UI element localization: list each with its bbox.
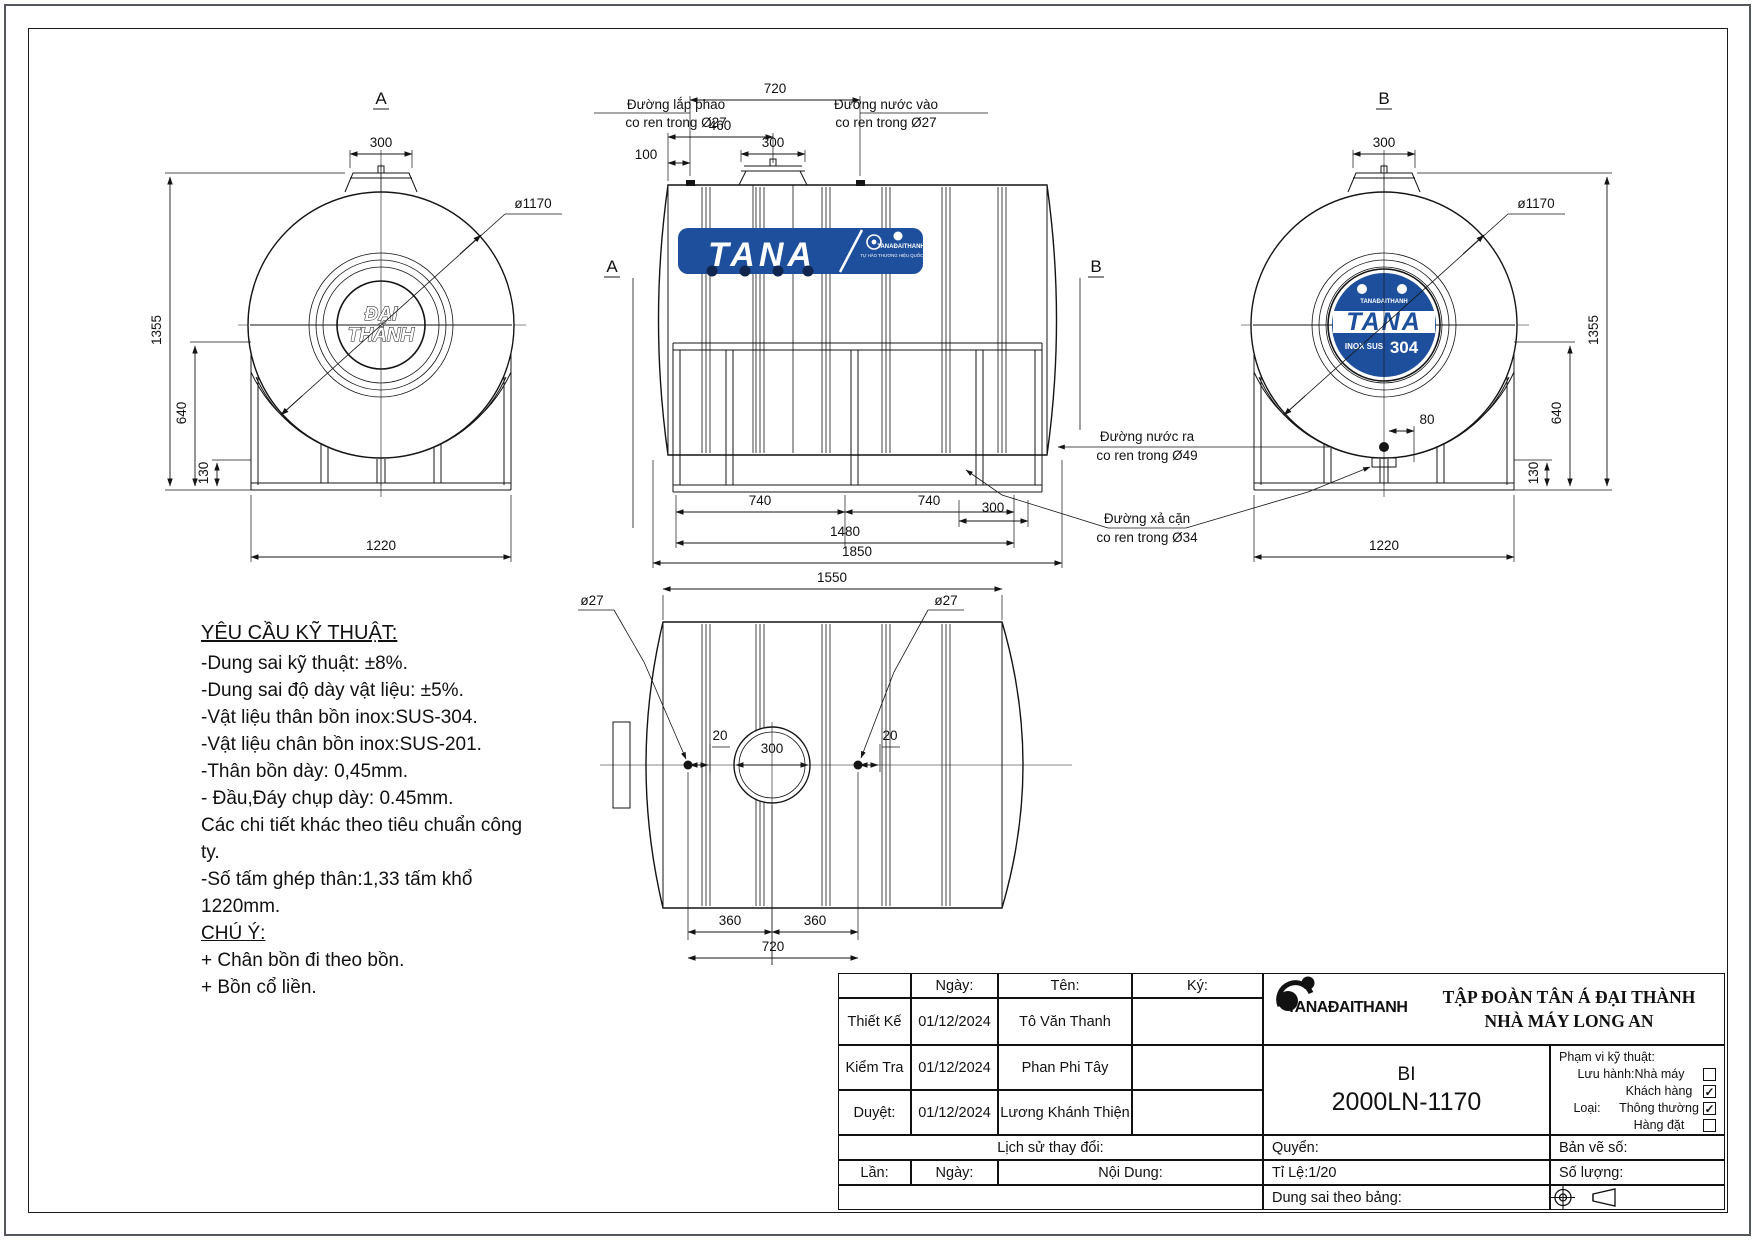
dim-720-top: 720 (762, 939, 785, 954)
tb-product-cell: BI 2000LN-1170 (1263, 1045, 1550, 1135)
dim-offset-80: 80 (1419, 412, 1434, 427)
scope-luuhanh: Lưu hành:Nhà máy (1559, 1066, 1703, 1083)
label-inlet-1: Đường nước vào (834, 97, 938, 112)
tb-h-ten: Tên: (998, 973, 1132, 998)
check-mark: ✓ (1704, 1087, 1714, 1097)
label-outlet-2: co ren trong Ø49 (1096, 448, 1197, 463)
dim-lid: 300 (370, 135, 393, 150)
tb-role: Duyệt: (838, 1090, 911, 1135)
tanadaithanh-logo-icon (1264, 974, 1328, 1014)
view-b: B (1241, 89, 1612, 562)
tb-name: Lương Khánh Thiện (998, 1090, 1132, 1135)
top-view: 1550 300 20 20 ø27 ø27 360 360 (578, 570, 1072, 965)
note-title: CHÚ Ý: (201, 920, 541, 947)
label-phao-2: co ren trong Ø27 (625, 115, 726, 130)
dim-leg-a: 740 (749, 493, 772, 508)
projection-symbols (1551, 1186, 1621, 1209)
dim-diameter-b: ø1170 (1517, 196, 1554, 211)
tb-date: 01/12/2024 (911, 998, 998, 1045)
section-a-label: A (606, 257, 618, 276)
dim-leg: 130 (196, 462, 211, 485)
tech-line: -Dung sai kỹ thuật: ±8%. (201, 650, 541, 677)
dim-width-b: 1220 (1369, 538, 1399, 553)
tb-soluong: Số lượng: (1550, 1160, 1725, 1185)
tech-line: -Số tấm ghép thân:1,33 tấm khổ 1220mm. (201, 866, 541, 920)
scope-khachhang: Khách hàng (1615, 1083, 1703, 1100)
tech-line: -Vật liệu thân bồn inox:SUS-304. (201, 704, 541, 731)
tb-role: Thiết Kế (838, 998, 911, 1045)
tb-sign (1132, 998, 1263, 1045)
title-block: Ngày: Tên: Ký: Thiết Kế 01/12/2024 Tô Vă… (838, 973, 1725, 1210)
tb-sign (1132, 1090, 1263, 1135)
panda-mark-icon (894, 232, 903, 241)
dim-front-lid: 300 (762, 135, 785, 150)
tb-history-title: Lịch sử thay đổi: (838, 1135, 1263, 1160)
band-sub2: TỰ HÀO THƯƠNG HIỆU QUỐC GIA (860, 253, 932, 258)
dim-1550: 1550 (817, 570, 847, 585)
tech-title: YÊU CẦU KỸ THUẬT: (201, 620, 541, 647)
dim-hole: 300 (761, 741, 784, 756)
label-drain-1: Đường xả cặn (1104, 511, 1190, 526)
target-icon (1551, 1186, 1575, 1209)
dim-height: 1355 (149, 315, 164, 345)
tb-dungsai: Dung sai theo bảng: (1263, 1185, 1550, 1210)
tech-line: -Thân bồn dày: 0,45mm. (201, 758, 541, 785)
dim-length: 1850 (842, 544, 872, 559)
inlet-fitting (856, 180, 865, 186)
tb-scope-cell: Phạm vi kỹ thuật: Lưu hành:Nhà máy Khách… (1550, 1045, 1725, 1135)
label-phao-1: Đường lắp phao (627, 97, 725, 112)
scope-loai: Loại: (1559, 1100, 1615, 1117)
tb-h-ky: Ký: (1132, 973, 1263, 998)
checkbox-hang-dat (1703, 1119, 1716, 1132)
tb-empty (838, 973, 911, 998)
phao-fitting (686, 180, 695, 186)
tb-ngay2: Ngày: (911, 1160, 998, 1185)
scope-hangdat: Hàng đặt (1615, 1117, 1703, 1134)
tech-line: - Đầu,Đáy chụp dày: 0.45mm. (201, 785, 541, 812)
tb-company-cell: TANAĐAITHANH TẬP ĐOÀN TÂN Á ĐẠI THÀNH NH… (1263, 973, 1725, 1045)
tb-history-blank (838, 1185, 1263, 1210)
tb-banve: Bản vẽ số: (1550, 1135, 1725, 1160)
view-b-label: B (1378, 89, 1389, 108)
tech-line: -Vật liệu chân bồn inox:SUS-201. (201, 731, 541, 758)
view-a: A (149, 89, 562, 562)
tb-sign (1132, 1045, 1263, 1090)
company-name: TẬP ĐOÀN TÂN Á ĐẠI THÀNH NHÀ MÁY LONG AN (1422, 985, 1716, 1033)
company-line1: TẬP ĐOÀN TÂN Á ĐẠI THÀNH (1422, 985, 1716, 1009)
dim-end: 100 (635, 147, 658, 162)
tech-line: -Dung sai độ dày vật liệu: ±5%. (201, 677, 541, 704)
tb-date: 01/12/2024 (911, 1045, 998, 1090)
scope-thongthuong: Thông thường (1615, 1100, 1703, 1117)
product-code1: BI (1398, 1064, 1416, 1086)
checkbox-nha-may (1703, 1068, 1716, 1081)
engineering-drawing-page: { "colors": {"brand_blue": "#1e4f9c", "l… (0, 0, 1755, 1240)
dim-20-r: 20 (882, 728, 897, 743)
checkbox-khach-hang: ✓ (1703, 1085, 1716, 1098)
logo-line-2: THÀNH (348, 324, 416, 346)
dim-lid-b: 300 (1373, 135, 1396, 150)
tanadaithanh-logo: TANAĐAITHANH (1272, 1001, 1422, 1017)
grade-text: 304 (1390, 338, 1419, 357)
tb-h-ngay: Ngày: (911, 973, 998, 998)
label-inlet-2: co ren trong Ø27 (835, 115, 936, 130)
dim-legs-span: 1480 (830, 524, 860, 539)
dim-diameter: ø1170 (514, 196, 551, 211)
label-o27-left: ø27 (580, 593, 603, 608)
dim-width: 1220 (366, 538, 396, 553)
tb-tile: Tỉ Lệ:1/20 (1263, 1160, 1550, 1185)
product-code2: 2000LN-1170 (1332, 1088, 1482, 1117)
dim-360-b: 360 (804, 913, 827, 928)
tana-wordmark: TANA (708, 236, 816, 274)
label-drain-2: co ren trong Ø34 (1096, 530, 1198, 545)
tb-noidung: Nội Dung: (998, 1160, 1263, 1185)
dim-span: 720 (764, 81, 787, 96)
tb-name: Tô Văn Thanh (998, 998, 1132, 1045)
dim-20-l: 20 (712, 728, 727, 743)
label-outlet-1: Đường nước ra (1100, 429, 1195, 444)
tb-quyen: Quyển: (1263, 1135, 1550, 1160)
dim-360-a: 360 (719, 913, 742, 928)
dim-height-b: 1355 (1586, 315, 1601, 345)
tech-line: Các chi tiết khác theo tiêu chuẩn công t… (201, 812, 541, 866)
dim-drain-offset: 300 (982, 500, 1005, 515)
cone-projection-icon (1593, 1189, 1615, 1206)
technical-requirements: YÊU CẦU KỸ THUẬT: -Dung sai kỹ thuật: ±8… (201, 620, 541, 1001)
note-line: + Chân bồn đi theo bồn. (201, 947, 541, 974)
drain-point (1379, 442, 1389, 452)
scope-title: Phạm vi kỹ thuật: (1559, 1049, 1655, 1066)
dim-leg-b: 740 (918, 493, 941, 508)
dim-stand: 640 (174, 402, 189, 425)
company-line2: NHÀ MÁY LONG AN (1422, 1009, 1716, 1033)
dim-stand-b: 640 (1549, 402, 1564, 425)
tb-role: Kiểm Tra (838, 1045, 911, 1090)
check-mark: ✓ (1704, 1104, 1714, 1114)
note-line: + Bồn cổ liền. (201, 974, 541, 1001)
tb-projection-cell (1550, 1185, 1725, 1210)
tana-band: TANA TANAĐAITHANH TỰ HÀO THƯƠNG HIỆU QUỐ… (678, 228, 932, 277)
checkbox-thong-thuong: ✓ (1703, 1102, 1716, 1115)
section-b-label: B (1090, 257, 1101, 276)
tb-lan: Lần: (838, 1160, 911, 1185)
tb-date: 01/12/2024 (911, 1090, 998, 1135)
band-sub1: TANAĐAITHANH (877, 244, 925, 250)
tb-name: Phan Phi Tây (998, 1045, 1132, 1090)
label-o27-right: ø27 (934, 593, 957, 608)
dim-leg-b2: 130 (1526, 462, 1541, 485)
view-a-label: A (375, 89, 387, 108)
